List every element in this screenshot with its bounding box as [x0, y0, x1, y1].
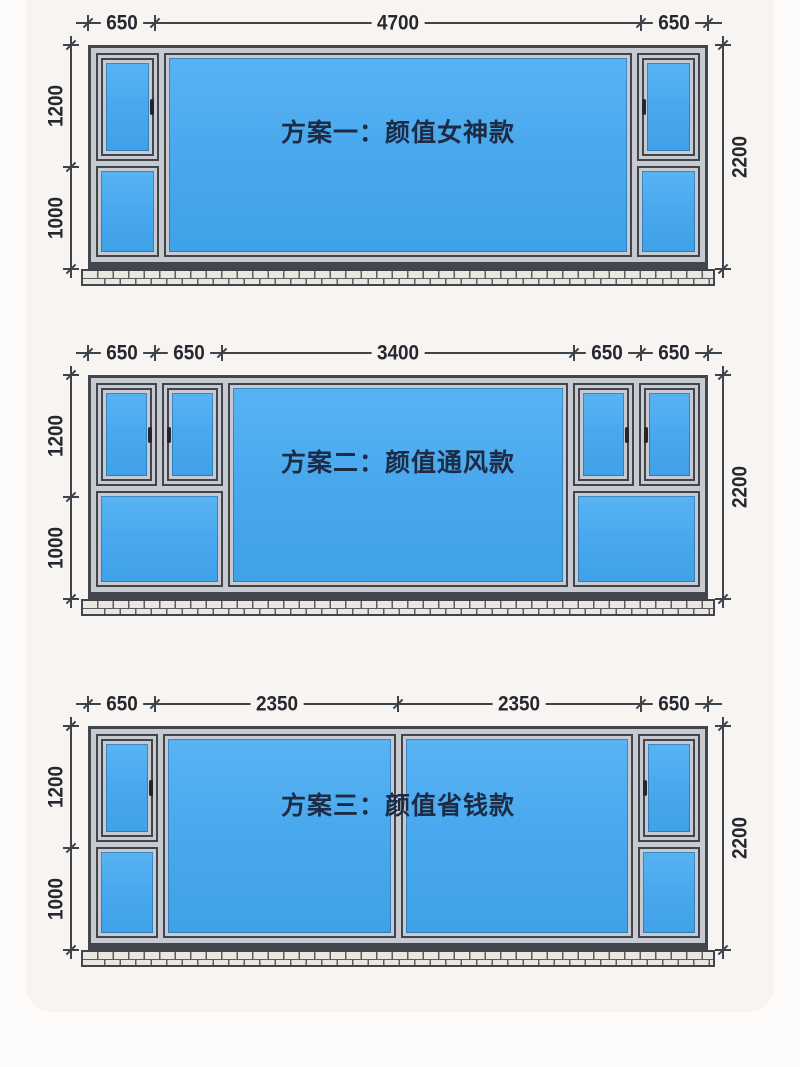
fixed-panel: [96, 491, 223, 587]
plan-3: 650 2350 2350 650 1200 1000 2200: [0, 693, 800, 993]
dimension-tick: [62, 37, 80, 53]
plan3-left-dimension: 1200 1000: [46, 726, 82, 950]
right-window-group: [573, 383, 700, 587]
casement-sash: [101, 58, 154, 156]
glass-panel: [647, 63, 690, 151]
plan1-right-dimension: 2200: [714, 45, 758, 269]
casement-sash: [167, 388, 218, 481]
window-sill: [81, 269, 715, 286]
dimension-line: [70, 36, 72, 278]
dimension-label: 1200: [46, 85, 67, 127]
fixed-panel: [637, 166, 700, 257]
dimension-label: 1200: [46, 766, 67, 808]
dimension-tick: [714, 591, 732, 607]
plan2-window-elevation: 方案二：颜值通风款: [88, 375, 708, 599]
dimension-tick: [700, 344, 716, 362]
dimension-label: 650: [586, 343, 628, 364]
casement-sash: [101, 739, 153, 837]
casement-window: [639, 383, 700, 486]
glass-panel: [101, 852, 153, 933]
glass-panel: [168, 739, 391, 933]
glass-panel: [101, 496, 218, 582]
dimension-tick: [566, 344, 582, 362]
glass-panel: [233, 388, 564, 582]
glass-panel: [406, 739, 629, 933]
casement-sash: [642, 58, 695, 156]
dimension-tick: [62, 840, 80, 856]
dimension-tick: [62, 367, 80, 383]
window-handle: [167, 427, 171, 443]
dimension-label: 2200: [730, 817, 751, 859]
fixed-panel: [96, 847, 158, 938]
dimension-tick: [147, 695, 163, 713]
dimension-tick: [62, 261, 80, 277]
dimension-tick: [714, 718, 732, 734]
casement-pair: [96, 383, 223, 486]
infographic-canvas: 650 4700 650 1200 1000 2200: [0, 0, 800, 1067]
left-window-column: [96, 734, 158, 938]
dimension-tick: [62, 718, 80, 734]
left-window-column: [96, 53, 159, 257]
glass-panel: [106, 63, 149, 151]
dimension-tick: [80, 14, 96, 32]
center-fixed-panel: [228, 383, 569, 587]
plan1-window-elevation: 方案一：颜值女神款: [88, 45, 708, 269]
plan2-left-dimension: 1200 1000: [46, 375, 82, 599]
fixed-panel: [638, 847, 700, 938]
dimension-label: 1000: [46, 878, 67, 920]
dimension-tick: [80, 344, 96, 362]
plan1-top-dimension: 650 4700 650: [88, 12, 708, 34]
dimension-line: [70, 366, 72, 608]
casement-sash: [644, 388, 695, 481]
glass-panel: [106, 744, 148, 832]
dimension-tick: [80, 695, 96, 713]
dimension-label: 650: [100, 13, 142, 34]
sliding-panel: [163, 734, 396, 938]
dimension-tick: [147, 14, 163, 32]
plan3-right-dimension: 2200: [714, 726, 758, 950]
dimension-label: 4700: [372, 13, 425, 34]
plan-title: 方案二：颜值通风款: [281, 443, 515, 479]
dimension-label: 1000: [46, 197, 67, 239]
center-fixed-panel: [164, 53, 631, 257]
casement-window: [96, 383, 157, 486]
plan-title: 方案一：颜值女神款: [281, 113, 515, 149]
glass-panel: [648, 744, 690, 832]
casement-pair: [573, 383, 700, 486]
casement-window: [637, 53, 700, 161]
dimension-tick: [700, 14, 716, 32]
window-handle: [149, 780, 153, 796]
dimension-label: 1000: [46, 527, 67, 569]
window-handle: [148, 427, 152, 443]
dimension-label: 1200: [46, 415, 67, 457]
dimension-tick: [633, 695, 649, 713]
dimension-tick: [147, 344, 163, 362]
plan2-right-dimension: 2200: [714, 375, 758, 599]
glass-panel: [578, 496, 695, 582]
dimension-label: 2350: [250, 694, 303, 715]
dimension-label: 650: [100, 343, 142, 364]
dimension-tick: [714, 367, 732, 383]
window-handle: [644, 427, 648, 443]
dimension-line: [722, 366, 724, 608]
dimension-tick: [633, 14, 649, 32]
glass-panel: [642, 171, 695, 252]
plan-title: 方案三：颜值省钱款: [281, 786, 515, 822]
casement-sash: [101, 388, 152, 481]
dimension-label: 650: [653, 13, 695, 34]
dimension-label: 650: [653, 694, 695, 715]
dimension-label: 3400: [372, 343, 425, 364]
left-window-group: [96, 383, 223, 587]
dimension-label: 2350: [493, 694, 546, 715]
glass-panel: [101, 171, 154, 252]
dimension-tick: [62, 489, 80, 505]
dimension-label: 650: [653, 343, 695, 364]
glass-panel: [643, 852, 695, 933]
plan2-top-dimension: 650 650 3400 650 650: [88, 342, 708, 364]
casement-window: [96, 53, 159, 161]
window-handle: [642, 99, 646, 115]
dimension-line: [722, 36, 724, 278]
dimension-tick: [390, 695, 406, 713]
window-sill: [81, 950, 715, 967]
glass-panel: [649, 393, 690, 476]
plan3-window-elevation: 方案三：颜值省钱款: [88, 726, 708, 950]
dimension-tick: [714, 942, 732, 958]
window-handle: [643, 780, 647, 796]
plan3-top-dimension: 650 2350 2350 650: [88, 693, 708, 715]
glass-panel: [106, 393, 147, 476]
dimension-label: 2200: [730, 466, 751, 508]
dimension-tick: [714, 261, 732, 277]
casement-window: [162, 383, 223, 486]
plan1-left-dimension: 1200 1000: [46, 45, 82, 269]
casement-sash: [643, 739, 695, 837]
dimension-tick: [700, 695, 716, 713]
casement-sash: [578, 388, 629, 481]
glass-panel: [172, 393, 213, 476]
dimension-label: 650: [168, 343, 210, 364]
plan-2: 650 650 3400 650 650 1200 1000 2200: [0, 342, 800, 642]
dimension-tick: [62, 942, 80, 958]
right-window-column: [637, 53, 700, 257]
dimension-label: 2200: [730, 136, 751, 178]
dimension-label: 650: [100, 694, 142, 715]
casement-window: [573, 383, 634, 486]
window-handle: [150, 99, 154, 115]
casement-window: [96, 734, 158, 842]
dimension-line: [722, 717, 724, 959]
dimension-tick: [62, 159, 80, 175]
dimension-line: [70, 717, 72, 959]
right-window-column: [638, 734, 700, 938]
glass-panel: [583, 393, 624, 476]
sliding-panel: [401, 734, 634, 938]
casement-window: [638, 734, 700, 842]
dimension-tick: [62, 591, 80, 607]
dimension-tick: [633, 344, 649, 362]
fixed-panel: [96, 166, 159, 257]
plan-1: 650 4700 650 1200 1000 2200: [0, 12, 800, 312]
dimension-tick: [714, 37, 732, 53]
window-handle: [625, 427, 629, 443]
dimension-tick: [214, 344, 230, 362]
glass-panel: [169, 58, 626, 252]
window-sill: [81, 599, 715, 616]
fixed-panel: [573, 491, 700, 587]
